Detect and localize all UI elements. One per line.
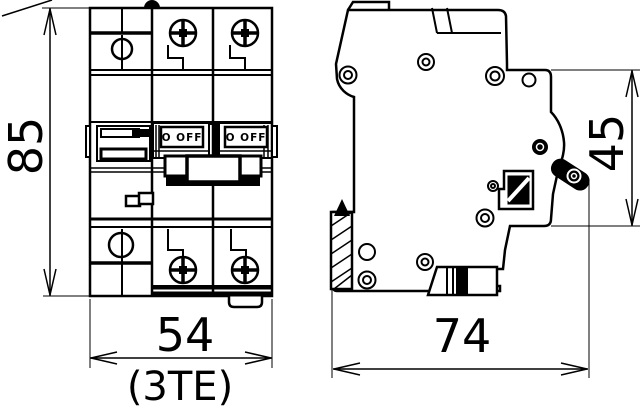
handle-center-tab xyxy=(187,156,240,182)
side-dark-button xyxy=(532,139,548,155)
side-body-outline xyxy=(333,10,564,291)
switch-label-left: O OFF xyxy=(162,132,203,144)
technical-drawing-page: O OFF O OFF xyxy=(0,0,640,418)
dim-85-label: 85 xyxy=(0,117,53,176)
front-busbar-1 xyxy=(153,285,272,290)
front-indicator-slider xyxy=(101,149,146,159)
handle-wing-right xyxy=(239,156,261,176)
dim-54-label: 54 xyxy=(156,308,215,362)
dim-3te-label: (3TE) xyxy=(127,364,233,410)
front-bottom-screw-left xyxy=(169,256,197,284)
front-top-bump xyxy=(144,0,160,8)
side-indicator-window xyxy=(499,171,533,209)
front-top-screw-left xyxy=(169,19,197,47)
switch-mid-strip-1 xyxy=(209,124,213,157)
switch-label-right: O OFF xyxy=(226,132,267,144)
breaker-dimension-drawing: O OFF O OFF xyxy=(0,0,640,418)
front-latch-square-2 xyxy=(139,193,153,204)
front-indicator-flag xyxy=(132,129,150,137)
front-bottom-screw-right xyxy=(231,256,259,284)
side-view xyxy=(331,2,593,295)
front-top-steps xyxy=(168,45,245,69)
side-clip-arrow xyxy=(334,199,350,216)
side-terminal-block xyxy=(428,267,497,295)
side-din-clip xyxy=(331,199,352,289)
front-view xyxy=(86,0,277,307)
dim-74-label: 74 xyxy=(433,309,492,363)
front-body-outline xyxy=(90,8,272,296)
front-band-lines xyxy=(90,70,272,122)
front-left-nub xyxy=(86,126,90,157)
dim-45-label: 45 xyxy=(580,114,634,173)
front-bottom-steps xyxy=(168,229,246,257)
front-foot-tab xyxy=(229,296,262,307)
front-top-screw-right xyxy=(231,19,259,47)
front-busbar-2 xyxy=(153,292,272,297)
